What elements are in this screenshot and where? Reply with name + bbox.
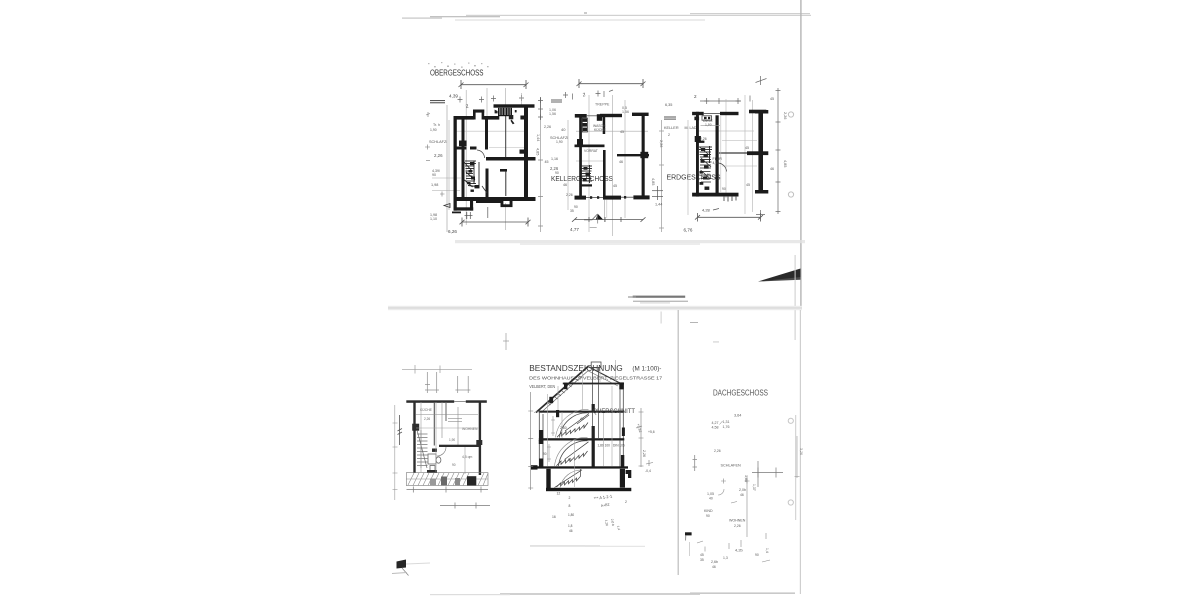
svg-text:35: 35 [570,209,574,213]
svg-text:+2,82: +2,82 [636,423,642,433]
svg-text:40: 40 [561,127,566,132]
svg-text:ERDGESCHOSS: ERDGESCHOSS [667,173,721,182]
svg-text:2: 2 [582,92,586,98]
svg-text:WOHNEN: WOHNEN [729,519,746,523]
svg-text:1,56: 1,56 [622,110,629,114]
svg-text:3,64: 3,64 [734,414,741,418]
svg-text:2,26: 2,26 [642,450,646,457]
svg-text:1,80: 1,80 [568,513,574,517]
svg-text:2,26: 2,26 [714,449,721,453]
svg-text:4,39: 4,39 [449,94,458,99]
svg-text:VELBERT, DEN: VELBERT, DEN [529,384,555,389]
svg-text:46: 46 [740,493,744,497]
svg-text:4,58: 4,58 [712,426,719,430]
svg-text:2: 2 [625,500,627,504]
svg-text:2,26: 2,26 [783,112,787,119]
svg-text:45: 45 [620,130,624,134]
svg-text:DACHGESCHOSS: DACHGESCHOSS [713,389,768,398]
svg-text:6,35: 6,35 [665,103,672,107]
svg-text:*** A 1·2·1: *** A 1·2·1 [593,493,613,501]
svg-text:KELLER: KELLER [664,126,679,130]
svg-text:90: 90 [452,463,456,467]
svg-text:90: 90 [755,553,759,557]
svg-text:4,85: 4,85 [783,160,787,167]
svg-text:2,60: 2,60 [560,426,567,430]
svg-text:4,28: 4,28 [702,208,711,213]
svg-text:45: 45 [613,184,617,188]
svg-text:2: 2 [668,133,670,137]
svg-text:1,76: 1,76 [723,425,730,429]
svg-text:SCHLAFZI: SCHLAFZI [429,140,447,144]
svg-text:1,4: 1,4 [616,525,621,531]
svg-text:3,26: 3,26 [799,448,803,455]
svg-text:TREPPE: TREPPE [595,103,610,107]
svg-text:4,27: 4,27 [712,421,719,425]
svg-text:SCHLAFEN: SCHLAFEN [721,464,742,468]
svg-text:2,26: 2,26 [424,417,430,421]
svg-text:90: 90 [432,173,436,177]
svg-text:QUERSCHNITT: QUERSCHNITT [593,409,636,415]
svg-text:1,26: 1,26 [604,519,609,526]
svg-text:4,85: 4,85 [651,178,655,185]
svg-text:2: 2 [465,103,469,109]
svg-text:M. LAD: M. LAD [685,126,697,130]
svg-text:90: 90 [574,205,578,209]
svg-text:VORRAT: VORRAT [584,149,598,153]
svg-text:4,85: 4,85 [536,148,540,155]
svg-text:KÜCHE: KÜCHE [420,408,433,412]
svg-text:4,2b: 4,2b [713,161,720,165]
svg-text:2,26: 2,26 [734,524,741,528]
svg-text:45: 45 [545,160,549,164]
svg-text:1,98: 1,98 [431,183,438,187]
svg-text:1,90: 1,90 [556,140,563,144]
svg-text:16: 16 [552,515,556,519]
svg-text:2: 2 [694,94,697,99]
svg-text:45: 45 [700,553,704,557]
svg-text:46: 46 [619,160,623,164]
svg-text:1,8: 1,8 [568,524,573,528]
svg-text:2,0 b: 2,0 b [610,518,615,526]
svg-text:2,26: 2,26 [700,137,707,141]
svg-text:1,56: 1,56 [549,112,556,116]
svg-text:46: 46 [563,183,567,187]
svg-text:2,6b: 2,6b [711,560,718,564]
svg-text:4,5 qm: 4,5 qm [462,455,473,459]
svg-text:2,0b: 2,0b [739,488,746,492]
svg-text:12: 12 [557,492,561,496]
svg-text:1,37: 1,37 [752,484,756,491]
svg-text:2,26: 2,26 [434,153,443,158]
svg-text:90: 90 [543,452,547,456]
svg-text:90: 90 [706,514,710,518]
svg-text:46: 46 [580,417,584,421]
svg-text:A+B2: A+B2 [600,502,609,507]
svg-text:45: 45 [770,97,774,101]
svg-text:46: 46 [569,529,573,533]
svg-text:6,26: 6,26 [448,229,457,234]
svg-text:OBERGESCHOSS: OBERGESCHOSS [430,69,484,78]
svg-text:BESTANDSZEICHNUNG: BESTANDSZEICHNUNG [529,363,623,373]
svg-text:46: 46 [712,565,716,569]
svg-text:(M 1:100)-: (M 1:100)- [632,365,661,372]
svg-text:1,31: 1,31 [723,420,730,424]
svg-text:1,10: 1,10 [430,217,437,221]
svg-text:2,26: 2,26 [659,140,663,147]
svg-text:4,2b: 4,2b [735,548,744,553]
svg-text:WOHNEN: WOHNEN [462,427,478,431]
svg-text:45: 45 [746,183,750,187]
svg-text:35: 35 [700,558,704,562]
svg-text:8: 8 [569,504,571,508]
svg-text:45: 45 [745,146,749,150]
svg-text:90: 90 [568,458,572,462]
svg-text:1,05: 1,05 [707,492,714,496]
svg-text:1,3: 1,3 [723,556,728,560]
svg-text:DES WOHNHAUSES VELBERT, ZI: DES WOHNHAUSES VELBERT, ZIEGELSTRASSE 17 [529,375,663,380]
svg-text:1,44: 1,44 [655,203,662,207]
svg-text:4,77: 4,77 [570,227,579,232]
svg-text:1,44: 1,44 [536,134,540,141]
svg-text:46: 46 [770,167,774,171]
svg-text:-0,4: -0,4 [645,469,651,473]
svg-text:1,80 100: 1,80 100 [598,444,611,448]
svg-text:+5,6: +5,6 [648,430,655,434]
svg-text:90: 90 [722,187,726,191]
svg-text:1,4: 1,4 [765,548,769,553]
svg-text:1,90: 1,90 [449,438,455,442]
svg-text:6,76: 6,76 [684,228,693,233]
svg-text:90: 90 [555,171,559,175]
svg-text:Tr. h: Tr. h [433,123,440,127]
svg-text:40: 40 [709,497,713,501]
svg-text:2,26: 2,26 [544,125,551,129]
svg-text:1,16: 1,16 [551,157,558,161]
svg-text:DIN 105: DIN 105 [613,444,625,448]
svg-text:KÜCHE: KÜCHE [594,128,607,132]
svg-text:1,88: 1,88 [706,173,710,180]
svg-text:2: 2 [569,496,571,500]
svg-text:2,26: 2,26 [566,193,573,197]
svg-text:KIND: KIND [704,509,713,513]
svg-text:1,90: 1,90 [430,128,437,132]
